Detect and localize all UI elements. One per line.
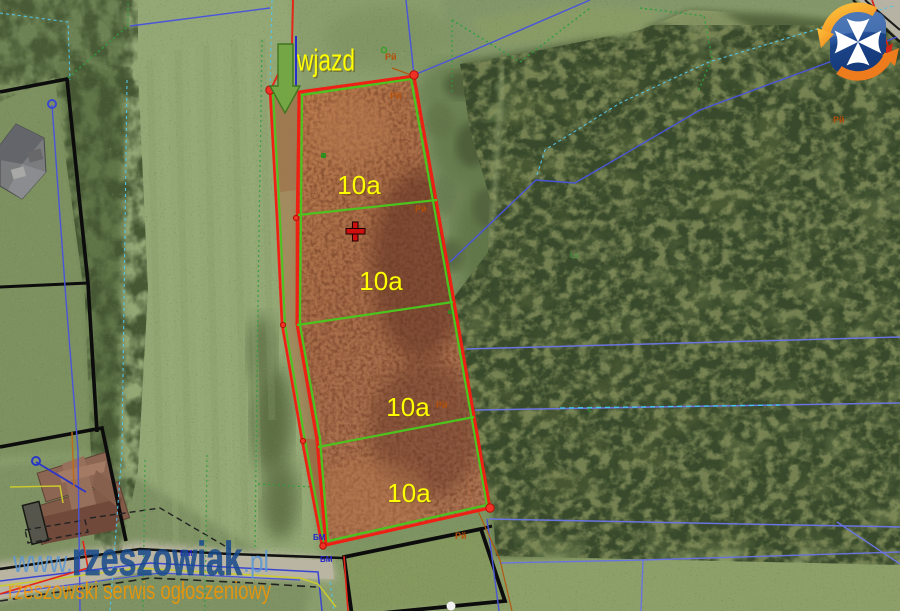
svg-text:10a: 10a [386,392,430,422]
svg-text:Рй: Рй [415,204,427,214]
svg-text:Рй: Рй [385,52,397,62]
svg-text:БМ: БМ [313,533,326,542]
svg-text:Ł: Ł [588,405,593,414]
svg-text:rzeszowski serwis ogłoszeniowy: rzeszowski serwis ogłoszeniowy [8,577,271,605]
svg-text:10a: 10a [337,170,381,200]
svg-text:wjazd: wjazd [296,43,355,78]
svg-text:Рй: Рй [833,115,845,125]
svg-text:Рй: Рй [455,531,467,541]
svg-text:БМ: БМ [320,555,333,564]
svg-text:10a: 10a [387,478,431,508]
svg-text:Рй: Рй [390,91,402,101]
svg-text:www.: www. [12,544,73,579]
svg-text:Łs: Łs [570,251,578,260]
svg-text:.pl: .pl [243,544,269,579]
svg-text:10a: 10a [359,266,403,296]
svg-text:Рй: Рй [436,400,448,410]
